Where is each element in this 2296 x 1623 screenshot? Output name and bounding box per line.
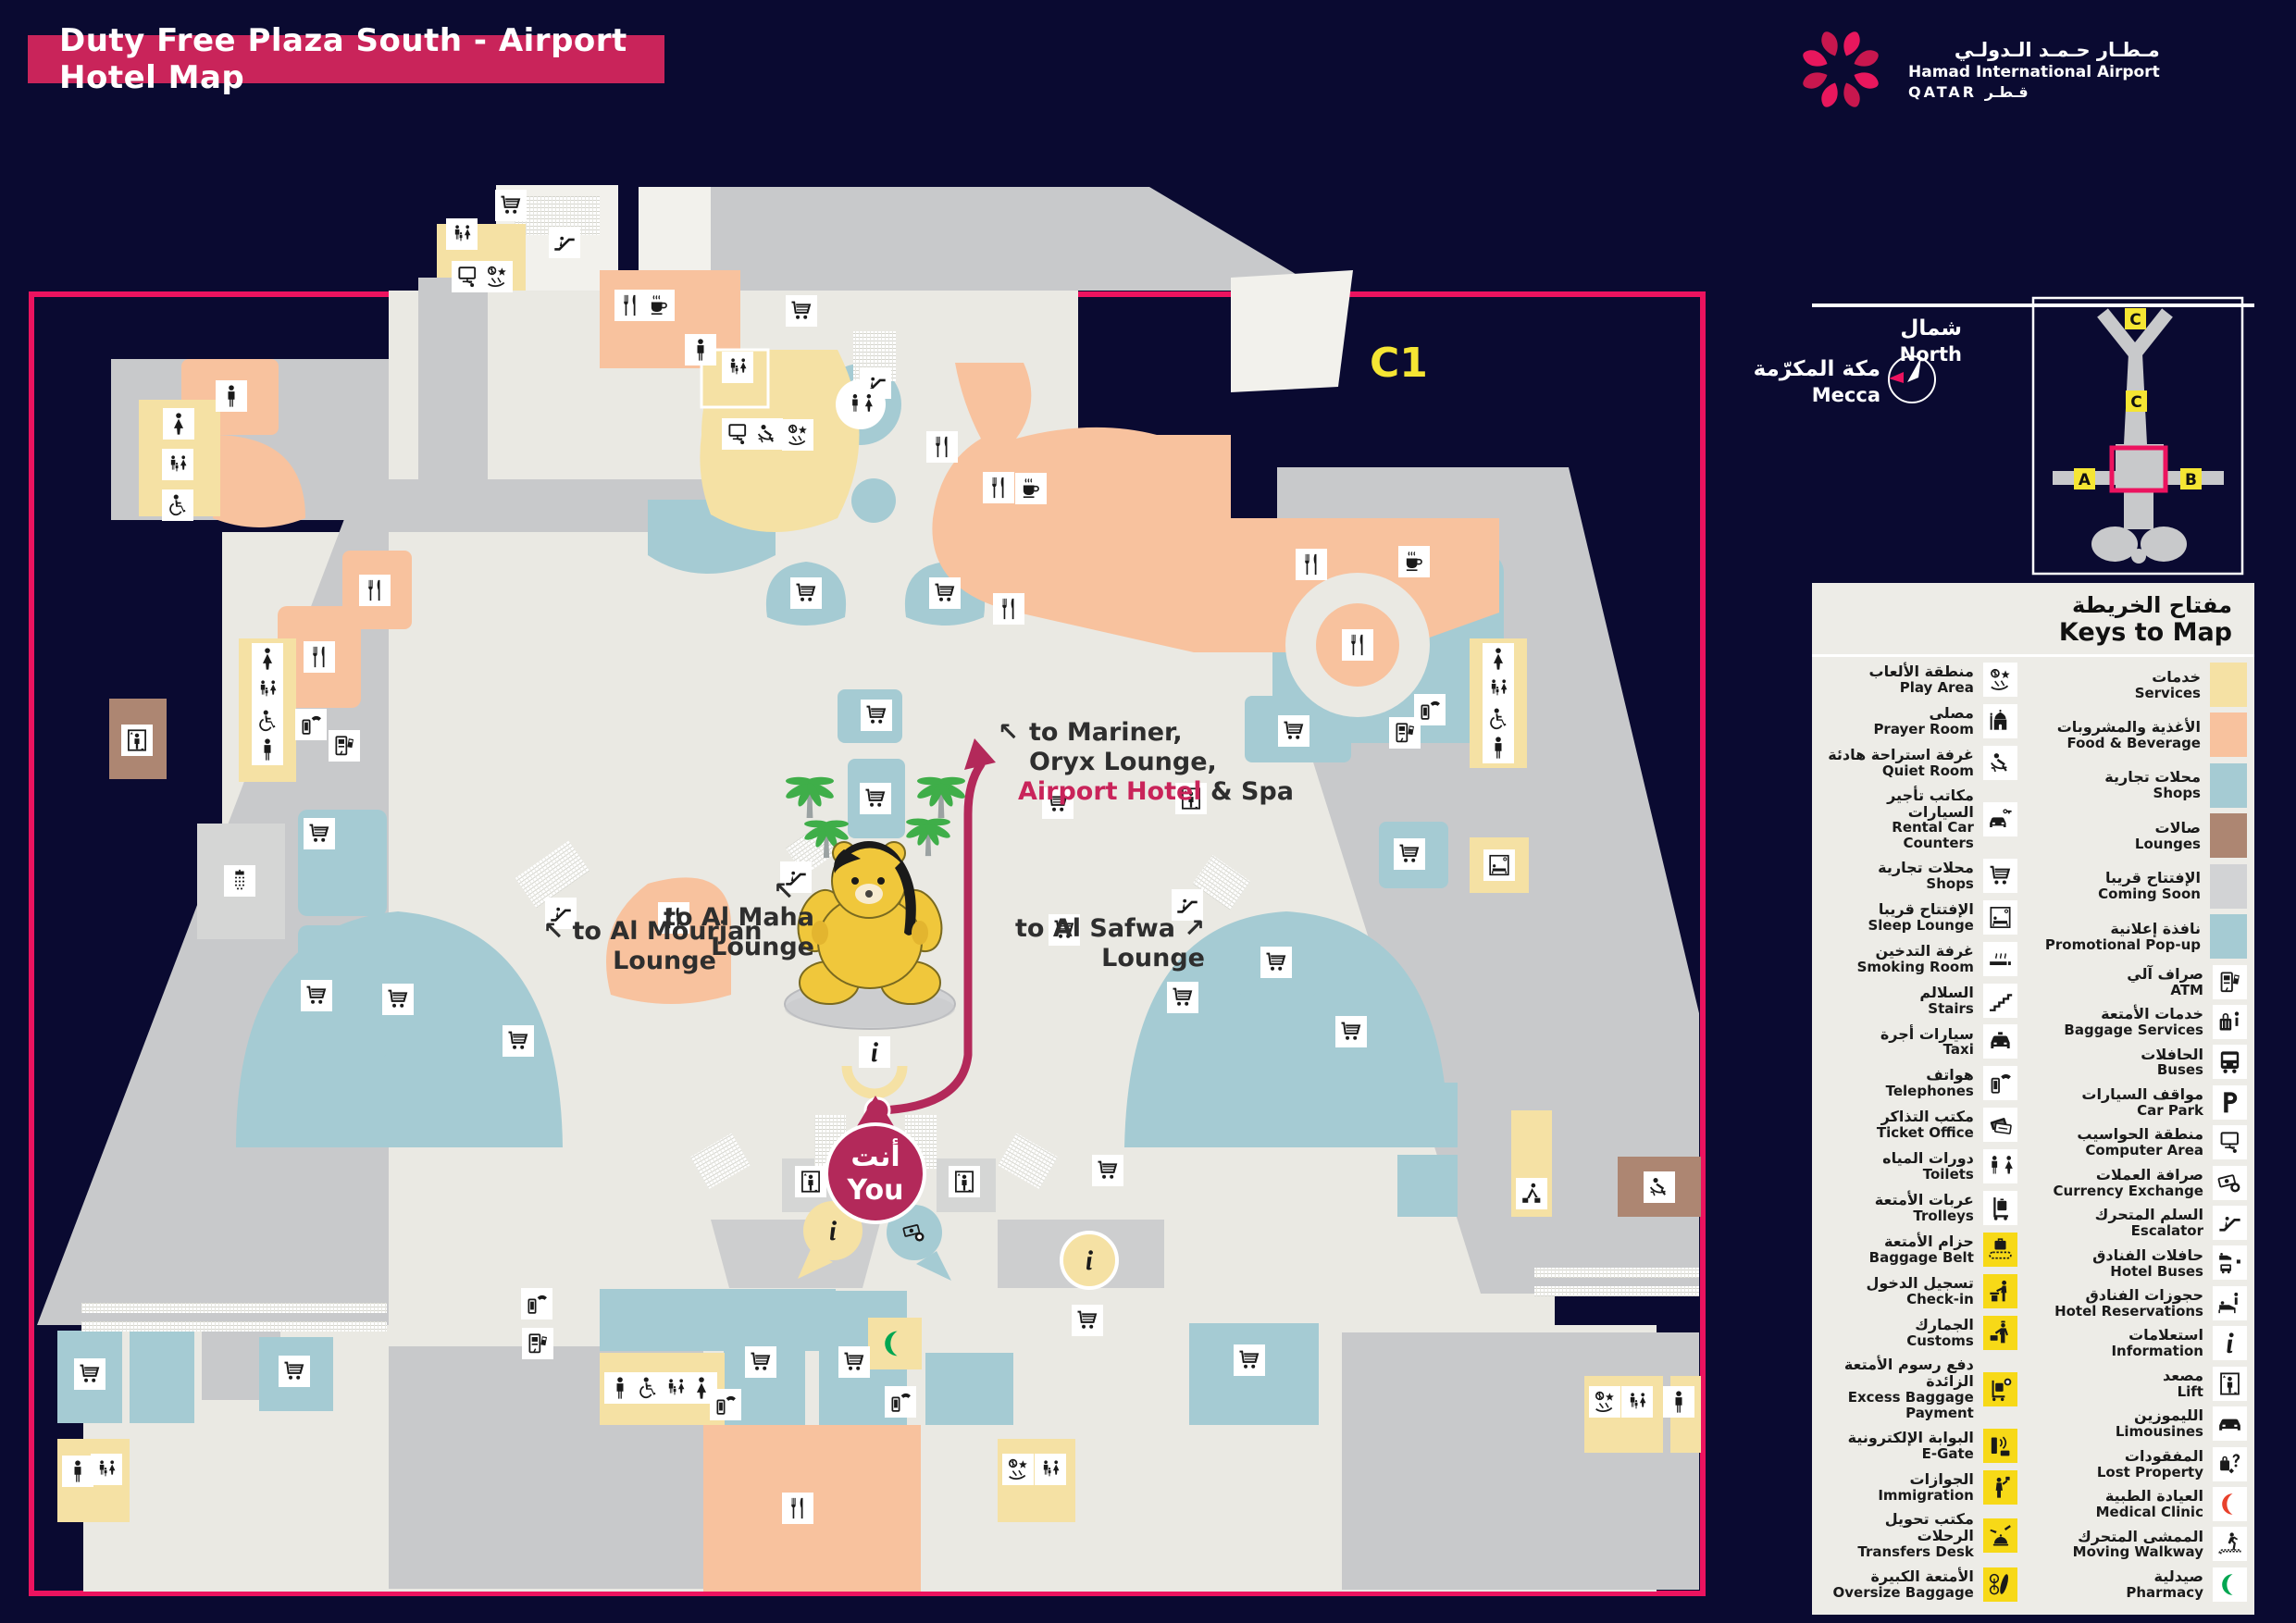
legend-item-label: الإفتتاح قريباComing Soon <box>2098 870 2201 902</box>
legend-item-label: عربات الأمتعةTrolleys <box>1875 1192 1974 1224</box>
legend-item-label: العيادة الطبيةMedical Clinic <box>2096 1488 2203 1520</box>
map-icon-cart <box>74 1358 105 1390</box>
map-icon-family <box>91 1454 122 1485</box>
legend-item-services: خدماتServices <box>2032 663 2247 707</box>
map-icon-restaurant <box>614 290 646 321</box>
mecca-label-ar: مكة المكرّمة <box>1754 357 1880 381</box>
legend-item-label: دورات المياهToilets <box>1882 1150 1974 1183</box>
limo-icon <box>2213 1406 2247 1441</box>
map-icon-restaurant <box>359 575 391 606</box>
map-icon-cart <box>301 980 332 1011</box>
legend-item-currency-exchange: صرافة العملاتCurrency Exchange <box>2032 1166 2247 1200</box>
map-icon-lift <box>949 1166 980 1197</box>
legend-item-label: سيارات أجرةTaxi <box>1880 1026 1974 1059</box>
legend-item-check-in: تسجيل الدخولCheck-in <box>1827 1274 2017 1308</box>
services-swatch <box>2210 663 2247 707</box>
legend-item-promotional-pop-up: نافذة إعلانيةPromotional Pop-up <box>2032 914 2247 959</box>
cart-icon <box>1983 859 2017 893</box>
mecca-label-en: Mecca <box>1812 384 1880 406</box>
svg-text:C: C <box>2130 393 2141 412</box>
legend-item-limousines: الليموزينLimousines <box>2032 1406 2247 1441</box>
legend-item-buses: الحافلاتBuses <box>2032 1045 2247 1079</box>
legend-item-label: دفع رسوم الأمتعة الزائدةExcess Baggage P… <box>1827 1357 1974 1420</box>
legend-item-hotel-reservations: حجوزات الفنادقHotel Reservations <box>2032 1286 2247 1320</box>
logo-qatar: QATAR قـطـر <box>1908 83 2160 101</box>
legend-item-label: هواتفTelephones <box>1886 1067 1974 1099</box>
legend-item-shops: محلات تجاريةShops <box>1827 859 2017 893</box>
map-icon-play <box>481 261 513 292</box>
zone-label-c1: C1 <box>1370 340 1428 387</box>
map-icon-computer <box>722 418 753 450</box>
map-icon-toilets <box>845 389 876 420</box>
legend-item-food-beverage: الأغذية والمشروباتFood & Beverage <box>2032 712 2247 757</box>
map-icon-restaurant <box>983 472 1014 503</box>
play-icon <box>1983 663 2017 697</box>
legend-panel: مفتاح الخريطة Keys to Map منطقة الألعابP… <box>1812 583 2254 1615</box>
legend-item-label: صالاتLounges <box>2135 820 2201 852</box>
legend-item-sleep-lounge: الإفتتاح قريباSleep Lounge <box>1827 900 2017 935</box>
maha-line2: Lounge <box>711 933 814 961</box>
customs-icon <box>1983 1316 2017 1350</box>
map-icon-shower <box>224 865 255 897</box>
legend-item-label: الليموزينLimousines <box>2116 1407 2203 1440</box>
legend-item-car-park: مواقف السياراتCar Park <box>2032 1085 2247 1120</box>
mariner-line1: to Mariner, <box>1029 718 1183 747</box>
map-icon-family <box>1483 673 1514 704</box>
legend-item-escalator: السلم المتحركEscalator <box>2032 1206 2247 1240</box>
maha-line1: to Al Maha <box>664 903 814 932</box>
map-icon-family <box>1035 1454 1066 1485</box>
legend-item-label: خدمات الأمتعةBaggage Services <box>2064 1006 2203 1038</box>
svg-text:C: C <box>2129 311 2141 329</box>
transfers-icon <box>1983 1518 2017 1553</box>
legend-item-label: الممشى المتحركMoving Walkway <box>2073 1529 2203 1561</box>
map-icon-woman <box>1483 643 1514 675</box>
map-icon-cart <box>1072 1305 1103 1336</box>
map-icon-sleep <box>1483 849 1515 881</box>
you-label-en: You <box>847 1174 904 1207</box>
map-icon-phone <box>710 1389 741 1420</box>
crescent-icon <box>2213 1487 2247 1521</box>
map-icon-play <box>1002 1454 1034 1485</box>
legend-item-taxi: سيارات أجرةTaxi <box>1827 1024 2017 1059</box>
trolley-icon <box>1983 1191 2017 1225</box>
map-icon-family <box>722 352 753 383</box>
legend-item-label: مواقف السياراتCar Park <box>2081 1086 2203 1119</box>
legend-item-label: صرافة العملاتCurrency Exchange <box>2054 1167 2203 1199</box>
legend-item-label: الجوازاتImmigration <box>1878 1471 1974 1504</box>
map-icon-porter <box>1516 1178 1547 1209</box>
map-icon-atm <box>1389 717 1421 749</box>
carkey-icon <box>1983 802 2017 836</box>
map-icon-man <box>1663 1386 1694 1418</box>
atm-icon <box>2213 965 2247 999</box>
legend-item-label: حافلات الفنادقHotel Buses <box>2092 1247 2203 1280</box>
legend-item-information: استعلاماتInformation <box>2032 1326 2247 1360</box>
legend-item-label: السلم المتحركEscalator <box>2095 1207 2203 1239</box>
lounges-swatch <box>2210 813 2247 858</box>
mariner-line2: Oryx Lounge, <box>1029 748 1217 776</box>
map-icon-accessible <box>162 489 193 521</box>
map-icon-phone <box>521 1288 552 1319</box>
overview-map: C C A B <box>2033 298 2242 574</box>
mariner-arrow: ↖ <box>998 718 1019 747</box>
legend-column-right: خدماتServicesالأغذية والمشروباتFood & Be… <box>2032 663 2247 1602</box>
map-icon-restaurant <box>782 1493 813 1524</box>
legend-item-oversize-baggage: الأمتعة الكبيرةOversize Baggage <box>1827 1567 2017 1602</box>
bagservices-icon <box>2213 1005 2247 1039</box>
legend-item-label: تسجيل الدخولCheck-in <box>1866 1275 1973 1307</box>
mosque-icon <box>1983 704 2017 738</box>
map-icon-quiet <box>1644 1171 1675 1203</box>
map-icon-play <box>1589 1386 1620 1418</box>
computer-icon <box>2213 1125 2247 1159</box>
legend-item-label: الحافلاتBuses <box>2141 1047 2203 1079</box>
egate-icon <box>1983 1429 2017 1463</box>
legend-item-label: منطقة الحواسيبComputer Area <box>2077 1126 2203 1158</box>
legend-item-label: الأمتعة الكبيرةOversize Baggage <box>1833 1568 1974 1601</box>
map-icon-accessible <box>1483 703 1514 735</box>
legend-item-ticket-office: مكتب التذاكرTicket Office <box>1827 1108 2017 1142</box>
map-icon-coffee <box>1398 546 1430 577</box>
map-icon-cart <box>745 1346 776 1378</box>
map-icon-cart <box>1092 1155 1123 1186</box>
legend-item-label: البوابة الإلكترونيةE-Gate <box>1848 1430 1974 1462</box>
maha-arrow: ↖ <box>773 877 794 906</box>
legend-item-label: غرفة استراحة هادئةQuiet Room <box>1828 747 1974 779</box>
legend-item-label: مكاتب تأجير السياراتRental Car Counters <box>1827 787 1974 851</box>
map-icon-restaurant <box>926 431 958 463</box>
map-icon-lift <box>795 1166 826 1197</box>
legend-item-baggage-belt: حزام الأمتعةBaggage Belt <box>1827 1233 2017 1267</box>
legend-item-toilets: دورات المياهToilets <box>1827 1149 2017 1183</box>
map-icon-cart <box>382 984 414 1015</box>
immigration-icon <box>1983 1470 2017 1505</box>
map-icon-cart <box>1167 982 1198 1013</box>
coming-soon-swatch <box>2210 864 2247 909</box>
legend-item-prayer-room: مصلىPrayer Room <box>1827 704 2017 738</box>
walkway-icon <box>2213 1527 2247 1561</box>
legend-item-hotel-buses: حافلات الفنادقHotel Buses <box>2032 1245 2247 1280</box>
map-icon-accessible <box>632 1372 664 1404</box>
escalator-icon <box>2213 1206 2247 1240</box>
map-icon-man <box>62 1456 93 1487</box>
logo-english: Hamad International Airport <box>1908 63 2160 81</box>
legend-item-lift: مصعدLift <box>2032 1367 2247 1401</box>
map-icon-accessible <box>252 705 283 737</box>
legend-item-label: مصعدLift <box>2163 1368 2203 1400</box>
hotelbus-icon <box>2213 1245 2247 1280</box>
legend-item-immigration: الجوازاتImmigration <box>1827 1470 2017 1505</box>
map-icon-man <box>604 1372 636 1404</box>
crescent-icon <box>2213 1567 2247 1602</box>
you-label-ar: أنت <box>850 1138 900 1173</box>
map-icon-woman <box>252 643 283 675</box>
legend-item-label: صيدليةPharmacy <box>2126 1568 2203 1601</box>
legend-item-stairs: السلالمStairs <box>1827 984 2017 1018</box>
smoking-icon <box>1983 942 2017 976</box>
taxi-icon <box>1983 1024 2017 1059</box>
map-icon-cart <box>1335 1016 1367 1047</box>
mourjan-line2: Lounge <box>613 947 716 975</box>
north-label-en: North <box>1900 343 1962 365</box>
map-icon-cart <box>503 1025 534 1057</box>
checkin-icon <box>1983 1274 2017 1308</box>
map-icon-family <box>162 449 193 480</box>
legend-item-trolleys: عربات الأمتعةTrolleys <box>1827 1191 2017 1225</box>
info-icon <box>2213 1326 2247 1360</box>
map-icon-family <box>446 218 478 250</box>
map-icon-restaurant <box>304 641 335 673</box>
map-icon-phone <box>885 1386 916 1418</box>
legend-item-smoking-room: غرفة التدخينSmoking Room <box>1827 942 2017 976</box>
lift-icon <box>2213 1367 2247 1401</box>
legend-item-coming-soon: الإفتتاح قريباComing Soon <box>2032 864 2247 909</box>
legend-item-quiet-room: غرفة استراحة هادئةQuiet Room <box>1827 746 2017 780</box>
map-icon-cart <box>304 818 335 849</box>
logo-arabic: مـطـار حـمـد الـدولـي <box>1908 39 2160 61</box>
map-icon-phone <box>295 709 327 740</box>
svg-text:B: B <box>2185 471 2197 489</box>
map-icon-cart <box>860 783 891 814</box>
legend-column-left: منطقة الألعابPlay AreaمصلىPrayer Roomغرف… <box>1827 663 2017 1602</box>
map-icon-cart <box>495 190 527 221</box>
promotional-pop-up-swatch <box>2210 914 2247 959</box>
map-icon-cart <box>279 1356 310 1387</box>
map-icon-cart <box>786 295 817 327</box>
legend-item-label: الأغذية والمشروباتFood & Beverage <box>2057 719 2201 751</box>
quiet-icon <box>1983 746 2017 780</box>
map-icon-cart <box>1234 1344 1265 1376</box>
toilets-icon <box>1983 1149 2017 1183</box>
legend-item-play-area: منطقة الألعابPlay Area <box>1827 663 2017 697</box>
map-icon-coffee <box>643 290 675 321</box>
sleep-icon <box>1983 900 2017 935</box>
map-icon-cart <box>929 577 961 609</box>
legend-item-lounges: صالاتLounges <box>2032 813 2247 858</box>
map-icon-lift <box>121 725 153 756</box>
map-icon-man <box>685 334 716 365</box>
map-icon-restaurant <box>1296 549 1327 580</box>
legend-title-ar: مفتاح الخريطة <box>1827 592 2232 618</box>
shops-swatch <box>2210 763 2247 808</box>
legend-item-label: المفقوداتLost Property <box>2097 1448 2203 1481</box>
page-title: Duty Free Plaza South - Airport Hotel Ma… <box>59 22 664 96</box>
map-icon-atm <box>329 730 360 762</box>
map-icon-restaurant <box>1342 629 1373 661</box>
legend-divider <box>1812 654 2254 657</box>
map-icon-play <box>782 419 813 451</box>
legend-header: مفتاح الخريطة Keys to Map <box>1827 592 2232 647</box>
safwa-line2: Lounge <box>1101 944 1205 973</box>
map-icon-woman <box>163 408 194 440</box>
legend-item-label: محلات تجاريةShops <box>1878 860 1974 892</box>
legend-item-atm: صراف آليATM <box>2032 965 2247 999</box>
safwa-line1: to Al Safwa ↗ <box>1015 914 1205 943</box>
map-icon-cart <box>1260 947 1292 978</box>
legend-item-lost-property: المفقوداتLost Property <box>2032 1447 2247 1481</box>
svg-text:A: A <box>2079 471 2091 489</box>
p-icon <box>2213 1085 2247 1120</box>
stairs-icon <box>1983 984 2017 1018</box>
oversize-icon <box>1983 1567 2017 1602</box>
excess-icon <box>1983 1372 2017 1406</box>
phone-icon <box>1983 1066 2017 1100</box>
legend-item-label: حجوزات الفنادقHotel Reservations <box>2054 1287 2203 1319</box>
legend-item-excess-baggage-payment: دفع رسوم الأمتعة الزائدةExcess Baggage P… <box>1827 1357 2017 1420</box>
hotelres-icon <box>2213 1286 2247 1320</box>
logo-star-icon <box>1786 15 1895 124</box>
map-icon-computer <box>452 261 483 292</box>
legend-item-label: مكتب تحويل الرحلاتTransfers Desk <box>1827 1511 1974 1560</box>
legend-item-customs: الجماركCustoms <box>1827 1316 2017 1350</box>
legend-item-label: الجماركCustoms <box>1906 1317 1974 1349</box>
legend-item-moving-walkway: الممشى المتحركMoving Walkway <box>2032 1527 2247 1561</box>
legend-item-label: حزام الأمتعةBaggage Belt <box>1869 1233 1974 1266</box>
food-beverage-swatch <box>2210 712 2247 757</box>
map-icon-man <box>1483 732 1514 763</box>
legend-item-shops: محلات تجاريةShops <box>2032 763 2247 808</box>
legend-item-rental-car-counters: مكاتب تأجير السياراتRental Car Counters <box>1827 787 2017 851</box>
map-icon-cart <box>861 700 892 731</box>
map-icon-escalator <box>549 227 580 258</box>
legend-item-telephones: هواتفTelephones <box>1827 1066 2017 1100</box>
map-icon-family <box>1621 1386 1653 1418</box>
title-bar: Duty Free Plaza South - Airport Hotel Ma… <box>28 35 664 83</box>
map-icon-atm <box>522 1328 553 1359</box>
legend-item-label: منطقة الألعابPlay Area <box>1869 663 1974 696</box>
legend-item-computer-area: منطقة الحواسيبComputer Area <box>2032 1125 2247 1159</box>
legend-item-label: الإفتتاح قريباSleep Lounge <box>1868 901 1973 934</box>
map-icon-family <box>252 674 283 705</box>
legend-item-label: خدماتServices <box>2135 669 2201 701</box>
map-icon-cart <box>1394 838 1425 870</box>
airport-logo: مـطـار حـمـد الـدولـي Hamad Internationa… <box>1786 9 2286 130</box>
legend-item-baggage-services: خدمات الأمتعةBaggage Services <box>2032 1005 2247 1039</box>
map-icon-cart <box>790 577 822 609</box>
compass: شمال North مكة المكرّمة Mecca <box>1754 316 1962 406</box>
bus-icon <box>2213 1045 2247 1079</box>
legend-item-label: غرفة التدخينSmoking Room <box>1857 943 1974 975</box>
legend-item-label: مكتب التذاكرTicket Office <box>1877 1109 1974 1141</box>
legend-item-label: استعلاماتInformation <box>2111 1327 2203 1359</box>
legend-item-label: محلات تجاريةShops <box>2104 769 2201 801</box>
legend-item-medical-clinic: العيادة الطبيةMedical Clinic <box>2032 1487 2247 1521</box>
map-icon-quiet <box>751 418 783 450</box>
map-icon-man <box>216 380 247 412</box>
north-label-ar: شمال <box>1900 316 1962 341</box>
map-icon-man <box>252 734 283 765</box>
legend-item-label: نافذة إعلانيةPromotional Pop-up <box>2045 921 2201 953</box>
legend-item-label: صراف آليATM <box>2127 966 2203 998</box>
lost-icon <box>2213 1447 2247 1481</box>
map-icon-cart <box>1278 715 1309 747</box>
tickets-icon <box>1983 1108 2017 1142</box>
legend-item-pharmacy: صيدليةPharmacy <box>2032 1567 2247 1602</box>
bbelt-icon <box>1983 1233 2017 1267</box>
mecca-needle <box>1889 372 1904 383</box>
map-icon-coffee <box>1015 473 1047 504</box>
map-icon-info <box>859 1036 890 1068</box>
mariner-line3: Airport Hotel & Spa <box>1018 777 1294 806</box>
currency-icon <box>2213 1166 2247 1200</box>
legend-item-label: مصلىPrayer Room <box>1873 705 1973 737</box>
map-icon-restaurant <box>993 593 1024 625</box>
map-icon-cart <box>838 1346 870 1378</box>
legend-item-e-gate: البوابة الإلكترونيةE-Gate <box>1827 1429 2017 1463</box>
legend-item-label: السلالمStairs <box>1919 985 1973 1017</box>
legend-title-en: Keys to Map <box>1827 618 2232 647</box>
legend-item-transfers-desk: مكتب تحويل الرحلاتTransfers Desk <box>1827 1511 2017 1560</box>
